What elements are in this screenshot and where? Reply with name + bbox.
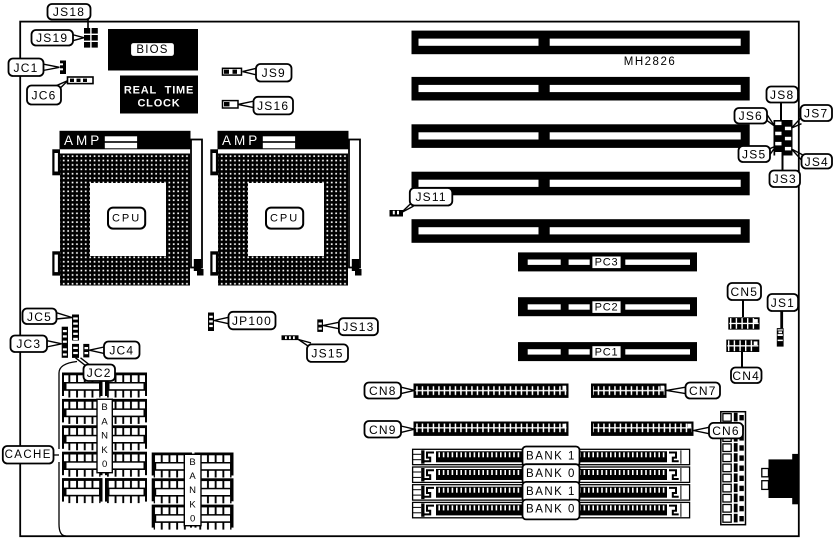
svg-text:JS18: JS18: [53, 5, 85, 19]
svg-text:CLOCK: CLOCK: [137, 98, 180, 110]
svg-text:JS11: JS11: [415, 190, 446, 204]
svg-text:CN5: CN5: [730, 285, 758, 299]
svg-text:BIOS: BIOS: [136, 44, 168, 56]
svg-text:JC1: JC1: [14, 61, 39, 75]
svg-text:JS15: JS15: [311, 347, 343, 361]
svg-text:JS6: JS6: [739, 109, 763, 123]
svg-text:JC4: JC4: [109, 344, 134, 358]
svg-text:CN6: CN6: [712, 424, 740, 438]
svg-text:PC1: PC1: [595, 346, 619, 358]
svg-text:JC2: JC2: [87, 366, 112, 380]
svg-text:CN8: CN8: [369, 384, 397, 398]
svg-text:BANK 0: BANK 0: [526, 504, 576, 516]
svg-text:JS13: JS13: [342, 320, 374, 334]
svg-text:AMP: AMP: [64, 133, 102, 148]
svg-text:0: 0: [190, 513, 195, 524]
svg-text:PC3: PC3: [595, 257, 619, 269]
svg-text:JS7: JS7: [804, 107, 828, 121]
svg-text:REAL TIME: REAL TIME: [124, 85, 194, 97]
svg-text:B: B: [101, 402, 107, 413]
svg-text:JS3: JS3: [773, 172, 797, 186]
svg-text:JC6: JC6: [32, 89, 57, 103]
svg-text:K: K: [189, 499, 196, 510]
svg-text:CPU: CPU: [112, 213, 141, 225]
svg-text:JC3: JC3: [16, 337, 41, 351]
svg-text:0: 0: [102, 459, 107, 470]
svg-text:BANK 0: BANK 0: [526, 468, 576, 480]
svg-text:CN7: CN7: [689, 384, 717, 398]
svg-text:BANK 1: BANK 1: [526, 486, 576, 498]
svg-text:N: N: [189, 485, 196, 496]
svg-text:N: N: [101, 431, 108, 442]
svg-text:A: A: [101, 416, 108, 427]
svg-text:B: B: [189, 457, 195, 468]
svg-text:JP100: JP100: [232, 314, 272, 328]
svg-text:PC2: PC2: [595, 302, 619, 314]
svg-text:CN4: CN4: [732, 369, 760, 383]
svg-text:AMP: AMP: [222, 133, 260, 148]
svg-text:JS1: JS1: [771, 296, 795, 310]
svg-text:CPU: CPU: [270, 213, 299, 225]
svg-text:JS4: JS4: [805, 155, 829, 169]
svg-text:CACHE: CACHE: [5, 449, 52, 461]
svg-text:CN9: CN9: [369, 423, 397, 437]
svg-text:JS19: JS19: [36, 31, 68, 45]
svg-text:JS5: JS5: [742, 148, 766, 162]
svg-text:A: A: [189, 471, 196, 482]
svg-text:JS8: JS8: [770, 88, 794, 102]
svg-text:JS9: JS9: [262, 66, 286, 80]
svg-text:JC5: JC5: [27, 310, 52, 324]
svg-text:MH2826: MH2826: [624, 56, 676, 68]
svg-text:BANK 1: BANK 1: [526, 450, 576, 462]
svg-text:JS16: JS16: [257, 99, 289, 113]
svg-text:K: K: [101, 445, 108, 456]
